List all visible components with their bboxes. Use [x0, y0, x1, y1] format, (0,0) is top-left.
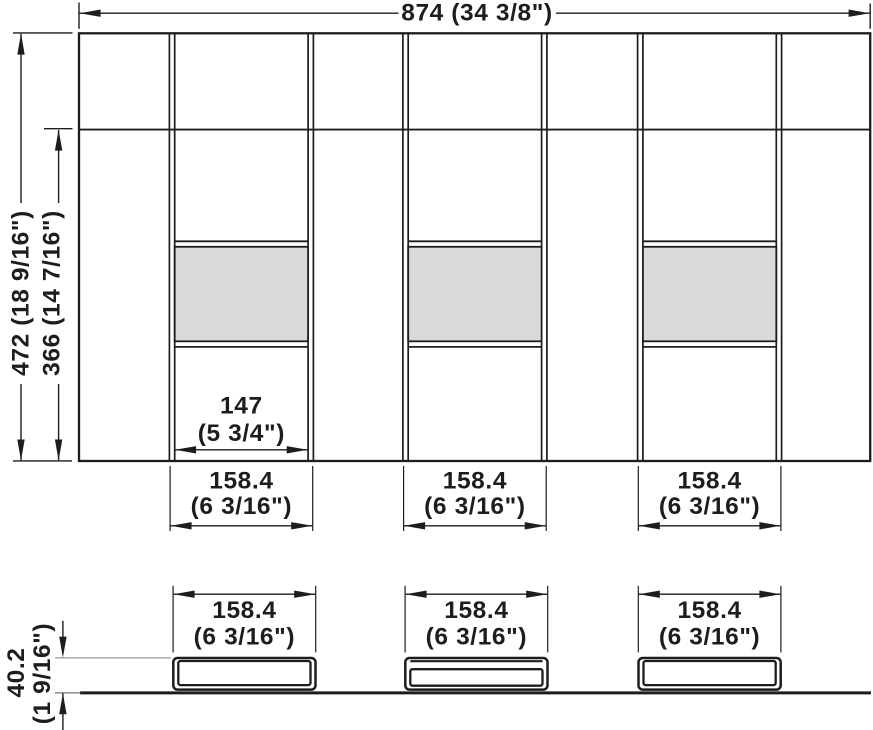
svg-text:874 (34 3/8"): 874 (34 3/8"): [401, 0, 553, 26]
svg-text:147: 147: [220, 393, 263, 420]
svg-text:(6 3/16"): (6 3/16"): [426, 624, 527, 651]
svg-text:(6 3/16"): (6 3/16"): [659, 624, 760, 651]
svg-text:158.4: 158.4: [443, 468, 507, 495]
svg-text:(6 3/16"): (6 3/16"): [194, 624, 295, 651]
svg-text:158.4: 158.4: [444, 597, 508, 624]
svg-text:(1 9/16"): (1 9/16"): [29, 623, 56, 724]
svg-text:40.2: 40.2: [3, 647, 30, 697]
svg-text:(5 3/4"): (5 3/4"): [198, 420, 285, 447]
svg-text:(6 3/16"): (6 3/16"): [424, 493, 525, 520]
svg-text:158.4: 158.4: [677, 468, 741, 495]
svg-text:(6 3/16"): (6 3/16"): [659, 493, 760, 520]
svg-text:(6 3/16"): (6 3/16"): [191, 493, 292, 520]
svg-text:158.4: 158.4: [212, 597, 276, 624]
svg-text:158.4: 158.4: [677, 597, 741, 624]
svg-text:472 (18 9/16"): 472 (18 9/16"): [7, 210, 34, 376]
svg-text:366 (14 7/16"): 366 (14 7/16"): [38, 210, 65, 376]
svg-text:158.4: 158.4: [209, 468, 273, 495]
